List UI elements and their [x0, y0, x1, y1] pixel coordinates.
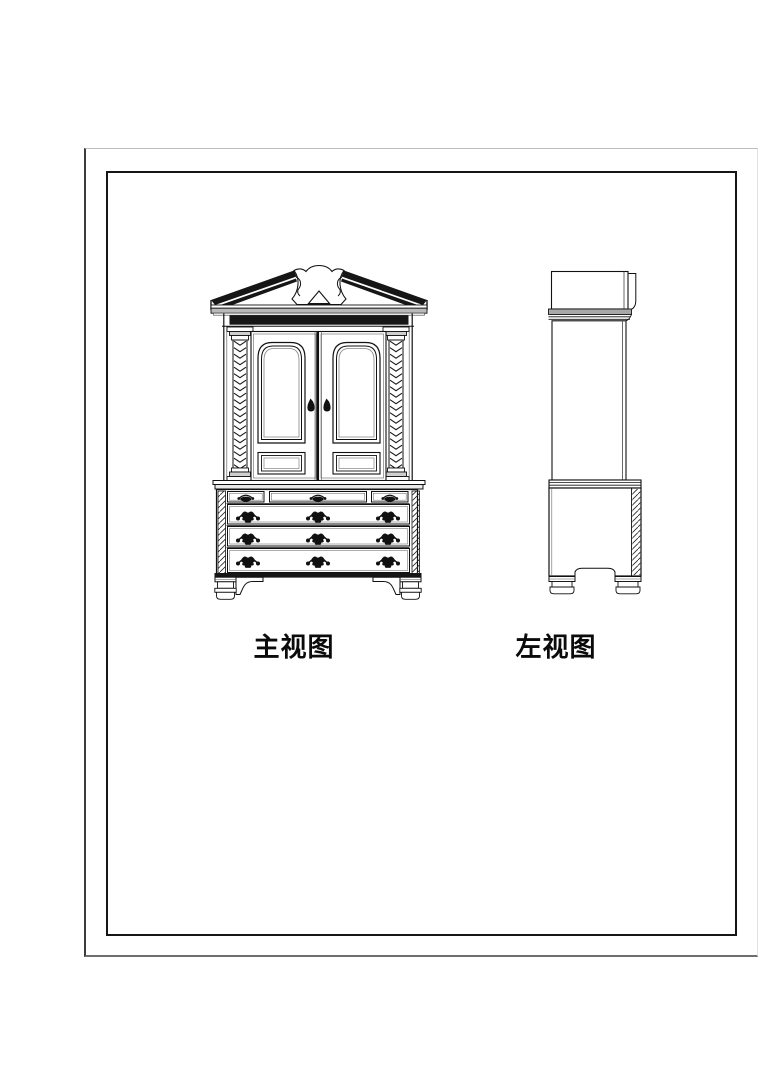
side-right-foot — [615, 577, 641, 594]
side-chest-section — [549, 480, 641, 578]
drawer-3 — [228, 527, 410, 547]
front-view-drawing — [190, 261, 440, 610]
cornice-entablature — [211, 305, 427, 326]
side-left-foot — [549, 577, 575, 594]
base-molding-band — [215, 573, 422, 577]
left-pilaster — [227, 327, 253, 482]
left-door-panels — [258, 343, 305, 475]
side-view-drawing — [540, 261, 650, 610]
front-left-foot — [215, 577, 263, 599]
side-cornice-box — [549, 272, 636, 321]
side-spiral-stile — [632, 489, 640, 575]
right-spiral-stile — [412, 491, 420, 576]
waist-molding — [213, 481, 425, 490]
left-spiral-stile — [218, 491, 226, 576]
side-upper-panel — [552, 321, 626, 480]
drawer-4 — [228, 549, 410, 573]
right-door-panels — [333, 343, 380, 475]
front-view-label: 主视图 — [238, 630, 350, 664]
cabinet-doors — [251, 332, 386, 481]
right-pilaster — [383, 327, 409, 482]
frieze-band — [230, 315, 409, 325]
top-drawer-row — [228, 492, 409, 503]
side-view-label: 左视图 — [500, 630, 612, 664]
drawing-sheet: 主视图 左视图 — [0, 0, 764, 1080]
broken-pediment — [211, 266, 427, 311]
drawer-2 — [228, 505, 410, 525]
chest-of-drawers — [215, 490, 422, 578]
front-right-foot — [373, 577, 421, 599]
